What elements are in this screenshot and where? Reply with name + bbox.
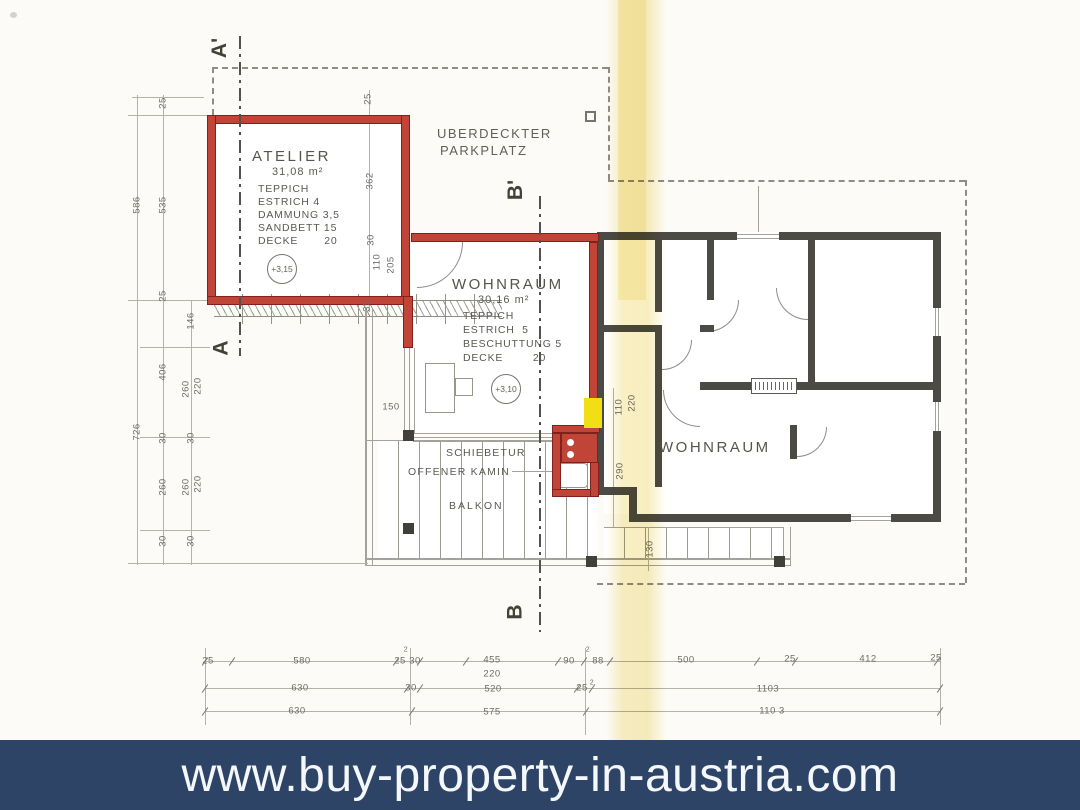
dim-tick <box>583 707 590 716</box>
dim-label: 260 <box>181 380 192 397</box>
dim-label: 260 <box>158 478 169 495</box>
dim-label: 146 <box>186 312 197 329</box>
dim-label: 220 <box>483 669 500 680</box>
dim-label: 455 <box>483 655 500 666</box>
dim-tick <box>937 684 944 693</box>
dim-label: 290 <box>615 462 626 479</box>
dim-label: 580 <box>293 656 310 667</box>
dim-tick <box>202 707 209 716</box>
dim-label: 726 <box>132 423 143 440</box>
dim-label: 130 <box>645 540 656 557</box>
dim-label: 1103 <box>757 684 779 695</box>
website-banner: www.buy-property-in-austria.com <box>0 740 1080 810</box>
dim-label: 110 <box>372 254 383 271</box>
dim-label: 575 <box>483 707 500 718</box>
dim-label: 30 <box>186 432 197 444</box>
dim-label: 110 3 <box>759 706 785 717</box>
dim-label: 630 <box>291 683 308 694</box>
dim-label: 406 <box>158 363 169 380</box>
dim-label: 2 <box>586 647 590 654</box>
dim-tick <box>202 684 209 693</box>
dim-label: 25 <box>158 290 169 302</box>
dim-label: 30 <box>366 234 377 246</box>
dim-tick <box>555 657 562 666</box>
dim-tick <box>754 657 761 666</box>
dim-label: 30 <box>158 432 169 444</box>
dim-label: 90 <box>563 656 575 667</box>
dim-label: 630 <box>288 706 305 717</box>
dim-label: 2 <box>404 647 408 654</box>
floor-plan-scan: A' A B' B <box>0 0 1080 740</box>
screenshot-root: A' A B' B <box>0 0 1080 810</box>
dim-label: 412 <box>859 654 876 665</box>
dim-tick <box>229 657 236 666</box>
dim-label: 35 <box>362 300 373 312</box>
dim-label: 25 <box>363 93 374 105</box>
dim-tick <box>937 707 944 716</box>
dim-label: 30 <box>186 535 197 547</box>
dim-label: 88 <box>592 656 604 667</box>
dim-tick <box>463 657 470 666</box>
dim-label: 220 <box>193 475 204 492</box>
dim-label: 260 <box>181 478 192 495</box>
website-url: www.buy-property-in-austria.com <box>181 748 898 803</box>
dim-label: 220 <box>193 377 204 394</box>
dim-label: 520 <box>484 684 501 695</box>
dim-label: 30 <box>158 535 169 547</box>
dim-label: 150 <box>382 402 399 413</box>
dim-label: 500 <box>677 655 694 666</box>
dim-tick <box>409 707 416 716</box>
dim-label: 220 <box>627 394 638 411</box>
dimension-layer: 5867262553525406302603014626022030260220… <box>0 0 1080 740</box>
dim-label: 25 <box>158 97 169 109</box>
dim-label: 205 <box>386 256 397 273</box>
dim-label: 586 <box>132 196 143 213</box>
dim-label: 535 <box>158 196 169 213</box>
dim-tick <box>607 657 614 666</box>
dim-tick <box>417 684 424 693</box>
dim-tick <box>581 657 588 666</box>
dim-label: 110 <box>614 399 625 416</box>
dim-label: 362 <box>365 172 376 189</box>
